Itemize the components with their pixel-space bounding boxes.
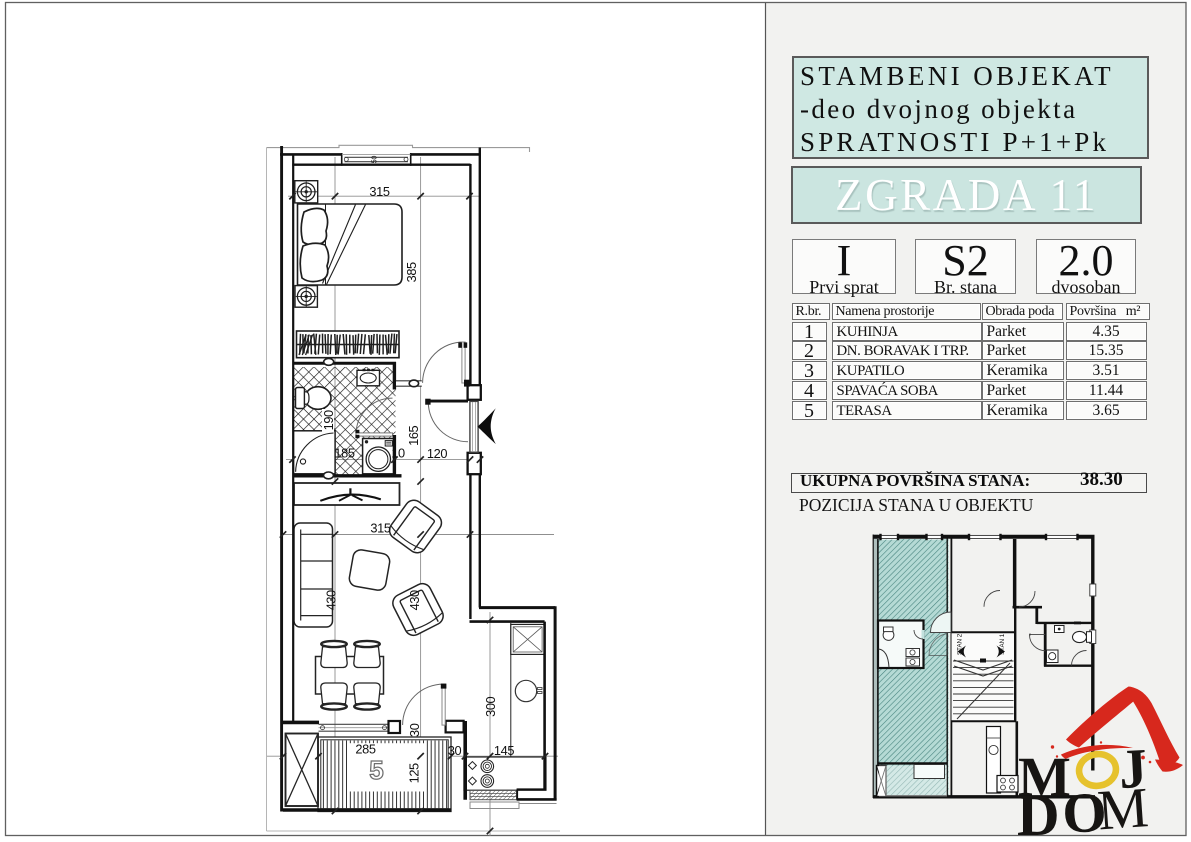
svg-text:D: D xyxy=(1017,782,1060,842)
svg-text:165: 165 xyxy=(406,425,421,445)
svg-text:285: 285 xyxy=(355,742,375,757)
svg-text:10: 10 xyxy=(391,445,405,460)
svg-text:M: M xyxy=(1096,776,1151,842)
svg-text:185: 185 xyxy=(334,445,354,460)
svg-text:145: 145 xyxy=(494,743,514,758)
svg-text:125: 125 xyxy=(407,763,422,783)
svg-text:430: 430 xyxy=(407,590,422,610)
svg-text:30: 30 xyxy=(407,723,422,737)
svg-text:120: 120 xyxy=(427,446,447,461)
svg-text:190: 190 xyxy=(321,410,336,430)
svg-text:300: 300 xyxy=(483,696,498,716)
svg-text:30: 30 xyxy=(448,743,462,758)
svg-text:430: 430 xyxy=(324,590,339,610)
svg-text:50: 50 xyxy=(371,156,378,164)
svg-text:315: 315 xyxy=(370,520,390,535)
svg-text:315: 315 xyxy=(369,184,389,199)
svg-text:5: 5 xyxy=(369,755,383,785)
svg-text:385: 385 xyxy=(404,262,419,282)
